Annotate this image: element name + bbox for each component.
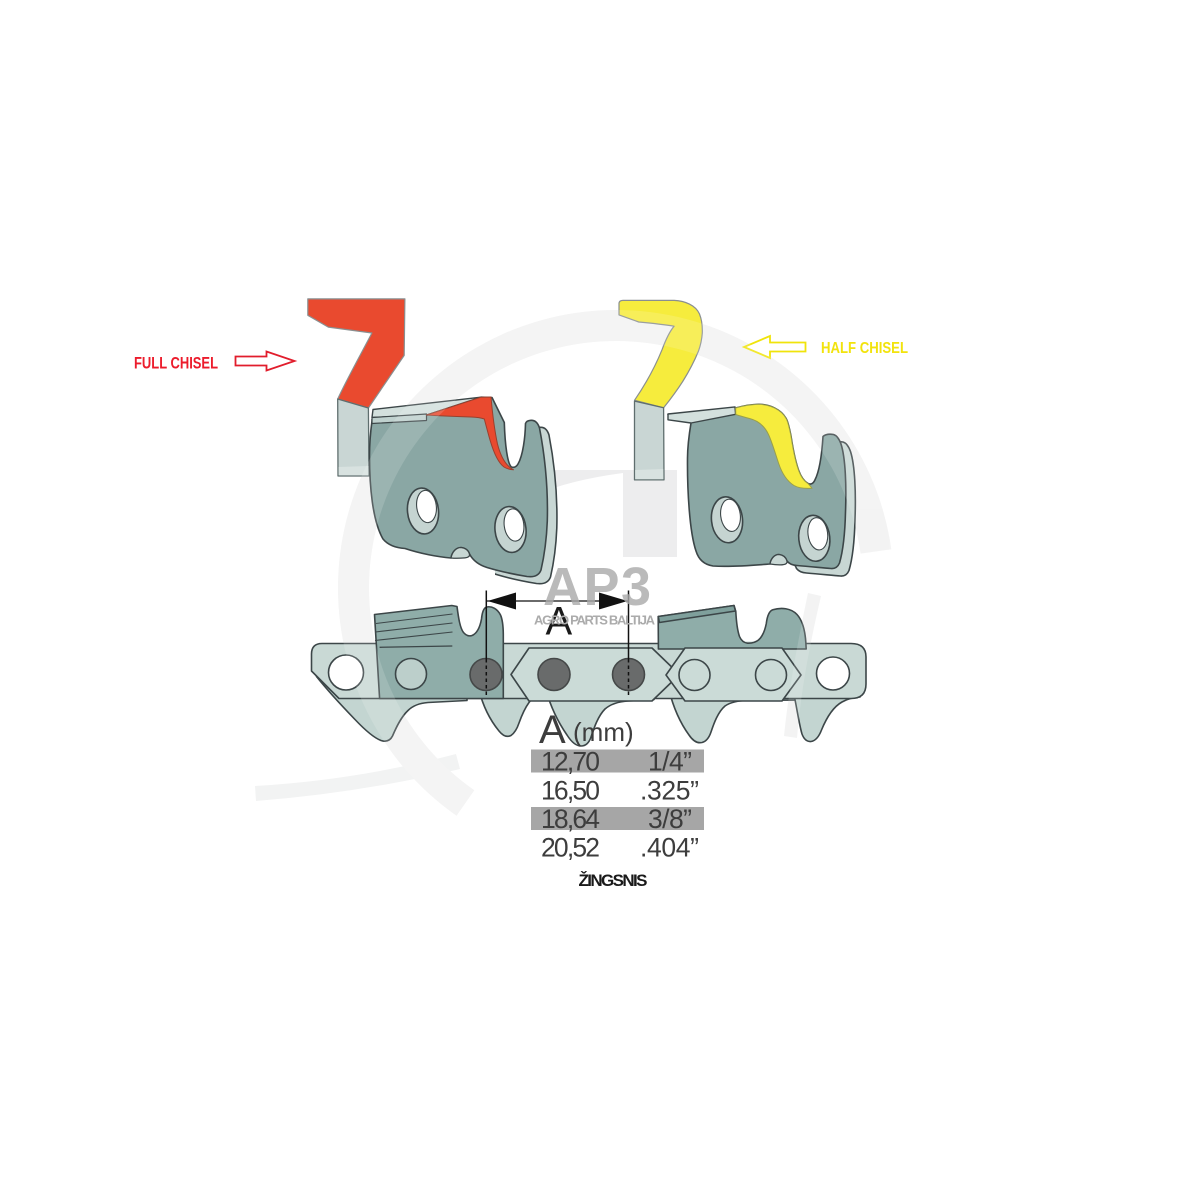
- svg-text:16,50: 16,50: [541, 776, 600, 806]
- svg-text:AP3: AP3: [543, 557, 651, 617]
- svg-text:.404”: .404”: [640, 833, 699, 863]
- svg-text:HALF CHISEL: HALF CHISEL: [821, 340, 908, 357]
- svg-text:1/4”: 1/4”: [648, 747, 692, 777]
- svg-text:FULL CHISEL: FULL CHISEL: [134, 355, 218, 373]
- svg-text:20,52: 20,52: [541, 833, 600, 863]
- svg-text:A: A: [539, 708, 566, 752]
- svg-text:ŽINGSNIS: ŽINGSNIS: [579, 871, 648, 890]
- svg-text:18,64: 18,64: [541, 804, 600, 834]
- svg-text:AGRO PARTS BALTIJA: AGRO PARTS BALTIJA: [534, 613, 656, 628]
- svg-text:3/8”: 3/8”: [648, 804, 692, 834]
- svg-text:.325”: .325”: [640, 776, 699, 806]
- svg-text:(mm): (mm): [573, 717, 634, 747]
- svg-text:12,70: 12,70: [541, 747, 600, 777]
